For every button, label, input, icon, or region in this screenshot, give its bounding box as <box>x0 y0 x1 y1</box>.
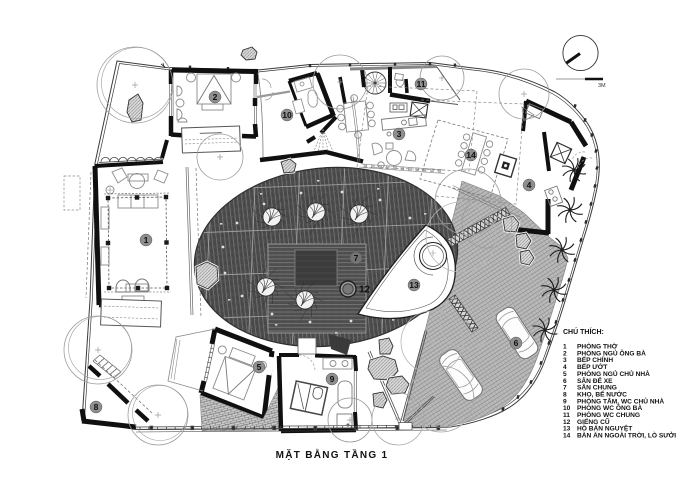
svg-text:BÀN ĂN NGOÀI TRỜI, LÒ SƯỞI: BÀN ĂN NGOÀI TRỜI, LÒ SƯỞI <box>577 431 676 440</box>
svg-text:6: 6 <box>514 338 519 348</box>
svg-text:3: 3 <box>397 129 402 139</box>
svg-text:SÂN ĐỂ XE: SÂN ĐỂ XE <box>577 376 613 385</box>
svg-text:9: 9 <box>330 374 335 384</box>
svg-text:13: 13 <box>409 280 419 290</box>
svg-text:PHÒNG WC CHUNG: PHÒNG WC CHUNG <box>577 410 640 419</box>
svg-text:14: 14 <box>563 433 571 440</box>
svg-text:MẶT BẰNG TẦNG 1: MẶT BẰNG TẦNG 1 <box>276 448 389 461</box>
svg-text:7: 7 <box>354 253 359 263</box>
svg-text:KHO, BỂ NƯỚC: KHO, BỂ NƯỚC <box>577 389 627 398</box>
svg-text:14: 14 <box>466 150 476 160</box>
svg-text:2: 2 <box>213 92 218 102</box>
svg-text:PHÒNG NGỦ CHỦ NHÀ: PHÒNG NGỦ CHỦ NHÀ <box>577 369 650 378</box>
svg-text:3M: 3M <box>598 83 606 89</box>
svg-text:10: 10 <box>282 110 292 120</box>
svg-text:PHÒNG NGỦ ÔNG BÀ: PHÒNG NGỦ ÔNG BÀ <box>577 348 646 357</box>
svg-text:4: 4 <box>527 180 532 190</box>
svg-text:12: 12 <box>359 285 371 296</box>
svg-text:PHÒNG THỜ: PHÒNG THỜ <box>577 342 618 351</box>
svg-text:CHÚ THÍCH:: CHÚ THÍCH: <box>563 327 604 336</box>
svg-text:SÂN CHUNG: SÂN CHUNG <box>577 383 617 392</box>
svg-text:PHÒNG WC ÔNG BÀ: PHÒNG WC ÔNG BÀ <box>577 403 642 412</box>
svg-text:PHÒNG TẮM, WC CHỦ NHÀ: PHÒNG TẮM, WC CHỦ NHÀ <box>577 396 664 405</box>
svg-text:8: 8 <box>94 402 99 412</box>
svg-text:5: 5 <box>257 362 262 372</box>
svg-text:1: 1 <box>144 235 149 245</box>
